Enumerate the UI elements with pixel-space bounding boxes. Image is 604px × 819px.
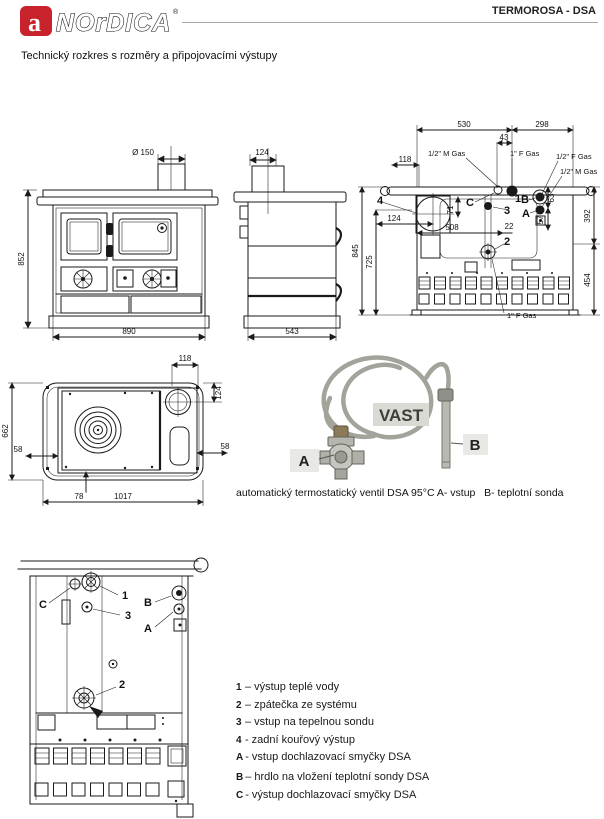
legend-separator: – xyxy=(245,699,251,711)
front-view-lines xyxy=(23,146,218,341)
legend-key: 1 xyxy=(236,682,243,693)
detail-callout-c: C xyxy=(39,599,47,611)
legend-key: 2 xyxy=(236,700,243,711)
top-dim-58-left: 58 xyxy=(14,445,23,454)
legend-item-a: A-vstup dochlazovací smyčky DSA xyxy=(236,751,598,763)
rear-dim-22: 22 xyxy=(505,222,514,231)
legend-key: A xyxy=(236,752,243,763)
legend-key: B xyxy=(236,772,243,783)
legend-separator: - xyxy=(245,751,249,763)
legend-separator: - xyxy=(245,789,249,801)
rear-dim-508: 508 xyxy=(445,223,459,232)
detail-callout-a: A xyxy=(144,623,152,635)
legend-text: vstup na tepelnou sondu xyxy=(254,716,374,728)
rear-view-drawing: 530 298 43 118 1/2" M Gas 1" F Gas 1/2" … xyxy=(352,116,604,350)
legend-separator: – xyxy=(245,716,251,728)
logo-letter: a xyxy=(28,8,41,37)
rear-dim-118: 118 xyxy=(399,155,412,164)
top-dim-124: 124 xyxy=(214,386,223,400)
rear-callout-a: A xyxy=(522,208,530,220)
rear-dim-530: 530 xyxy=(457,120,471,129)
legend-item-3: 3–vstup na tepelnou sondu xyxy=(236,716,598,728)
brand-logo: a NOrDICA ® xyxy=(16,0,186,44)
top-dim-662: 662 xyxy=(1,424,10,438)
detail-view-drawing: C 1 3 B A 2 xyxy=(5,548,213,819)
rear-callout-b: B xyxy=(521,194,529,206)
rear-callout-c: C xyxy=(466,197,474,209)
detail-callout-2: 2 xyxy=(119,679,125,691)
rear-label-half-m-gas-top: 1/2" M Gas xyxy=(428,149,466,158)
rear-vent-row-1 xyxy=(419,277,570,289)
top-view-screws xyxy=(46,386,199,470)
valve-caption: automatický termostatický ventil DSA 95°… xyxy=(236,487,564,499)
detail-vent-row-1 xyxy=(35,746,186,766)
rear-dim-392: 392 xyxy=(583,209,592,223)
legend-text: zpátečka ze systému xyxy=(254,699,357,711)
rear-callout-3: 3 xyxy=(504,205,510,217)
detail-callout-b: B xyxy=(144,597,152,609)
valve-body xyxy=(320,426,364,479)
legend-key: C xyxy=(236,790,243,801)
legend-separator: - xyxy=(245,734,249,746)
legend-separator: – xyxy=(245,771,251,783)
top-dim-78: 78 xyxy=(75,492,84,501)
top-dim-1017: 1017 xyxy=(114,492,132,501)
legend: 1–výstup teplé vody 2–zpátečka ze systém… xyxy=(236,681,598,806)
legend-text: vstup dochlazovací smyčky DSA xyxy=(252,751,411,763)
detail-view-lines xyxy=(18,558,208,817)
page-title: TERMOROSA - DSA xyxy=(492,5,596,17)
legend-item-c: C-výstup dochlazovací smyčky DSA xyxy=(236,789,598,801)
legend-text: hrdlo na vložení teplotní sondy DSA xyxy=(254,771,429,783)
front-width-dim: 890 xyxy=(122,327,136,336)
rear-label-half-m-gas-right: 1/2" M Gas xyxy=(560,167,598,176)
legend-text: zadní kouřový výstup xyxy=(252,734,355,746)
subtitle: Technický rozkres s rozměry a připojovac… xyxy=(21,50,277,62)
rear-label-half-f-gas: 1/2" F Gas xyxy=(556,152,592,161)
legend-text: výstup dochlazovací smyčky DSA xyxy=(252,789,416,801)
registered-mark: ® xyxy=(173,8,179,16)
legend-item-2: 2–zpátečka ze systému xyxy=(236,699,598,711)
top-dim-58-right: 58 xyxy=(221,442,230,451)
legend-item-b: B–hrdlo na vložení teplotní sondy DSA xyxy=(236,771,598,783)
detail-vent-row-2 xyxy=(35,781,184,802)
rear-vent-row-2 xyxy=(419,294,569,304)
valve-label-b: B xyxy=(470,437,481,454)
rear-callout-2: 2 xyxy=(504,236,510,248)
legend-key: 3 xyxy=(236,717,243,728)
legend-item-1: 1–výstup teplé vody xyxy=(236,681,598,693)
front-flue-diameter-dim: Ø 150 xyxy=(132,148,154,157)
valve-label-a: A xyxy=(299,453,310,470)
legend-item-4: 4-zadní kouřový výstup xyxy=(236,734,598,746)
vast-tag: VAST xyxy=(379,406,424,425)
brand-wordmark: NOrDICA xyxy=(56,9,171,37)
side-view-drawing: 124 543 xyxy=(226,126,354,350)
rear-dim-124: 124 xyxy=(387,214,401,223)
detail-screw-dots xyxy=(59,739,162,742)
rear-dim-845: 845 xyxy=(351,244,360,258)
rear-dim-725: 725 xyxy=(365,255,374,269)
rear-dim-57: 57 xyxy=(536,215,545,224)
top-view-lines xyxy=(8,365,227,506)
legend-separator: – xyxy=(245,681,251,693)
rear-dim-454: 454 xyxy=(583,273,592,287)
detail-callout-3: 3 xyxy=(125,610,131,622)
page: TERMOROSA - DSA a NOrDICA ® Technický ro… xyxy=(0,0,604,819)
rear-callout-4: 4 xyxy=(377,195,384,207)
front-height-dim: 852 xyxy=(17,252,26,266)
legend-text: výstup teplé vody xyxy=(254,681,339,693)
rear-dim-43: 43 xyxy=(500,133,509,142)
rear-dim-71: 71 xyxy=(446,205,455,214)
valve-b-leader xyxy=(451,443,463,444)
rear-dim-298: 298 xyxy=(535,120,549,129)
side-view-lines xyxy=(234,148,346,341)
valve-photo: VAST A B xyxy=(278,342,488,490)
rear-screw-dots xyxy=(426,272,553,274)
rear-label-one-f-gas-top: 1" F Gas xyxy=(510,149,540,158)
detail-callout-1: 1 xyxy=(122,590,128,602)
side-depth-dim: 543 xyxy=(285,327,299,336)
legend-key: 4 xyxy=(236,735,243,746)
top-dim-118: 118 xyxy=(179,354,192,363)
top-view-drawing: 118 124 662 58 58 78 1017 xyxy=(0,350,235,515)
valve-probe xyxy=(438,389,453,468)
side-flue-offset-dim: 124 xyxy=(255,148,269,157)
rear-dim-63: 63 xyxy=(547,193,556,202)
rear-label-one-f-gas-bottom: 1" F Gas xyxy=(507,311,537,320)
front-view-drawing: Ø 150 852 890 xyxy=(15,126,233,350)
